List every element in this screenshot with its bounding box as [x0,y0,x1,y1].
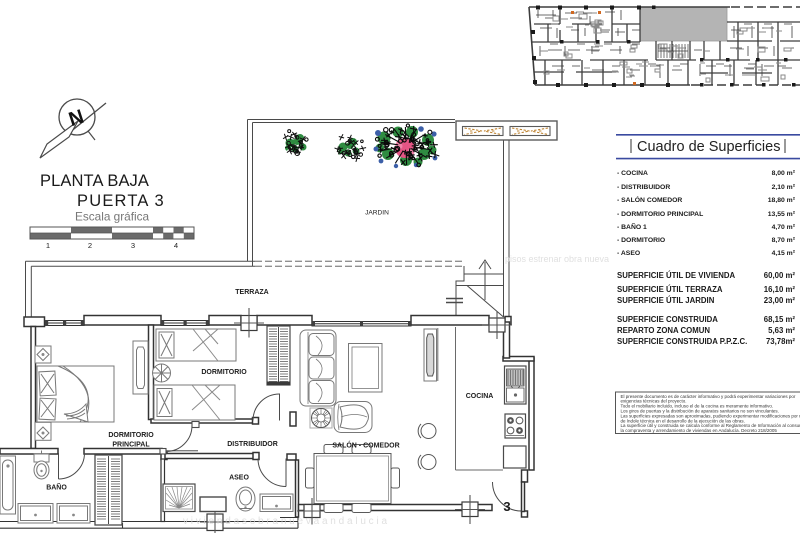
svg-text:18,80 m²: 18,80 m² [768,197,796,204]
svg-text:SALÓN - COMEDOR: SALÓN - COMEDOR [332,441,399,450]
svg-text:DORMITORIO: DORMITORIO [201,369,247,376]
svg-text:23,00 m²: 23,00 m² [764,296,796,305]
svg-text:PUERTA 3: PUERTA 3 [77,192,165,210]
svg-text:68,15 m²: 68,15 m² [764,315,796,324]
svg-text:2: 2 [88,241,92,250]
svg-text:4,15 m²: 4,15 m² [772,250,796,257]
svg-text:13,55 m²: 13,55 m² [768,211,796,218]
svg-text:- SALÓN COMEDOR: - SALÓN COMEDOR [617,195,682,204]
svg-text:16,10 m²: 16,10 m² [764,285,796,294]
svg-text:3: 3 [503,499,510,514]
svg-text:COCINA: COCINA [466,393,494,400]
svg-text:SUPERFICIE ÚTIL DE VIVIENDA: SUPERFICIE ÚTIL DE VIVIENDA [617,271,735,280]
svg-text:DISTRIBUIDOR: DISTRIBUIDOR [227,441,278,448]
svg-text:pisos estrenar obra nueva: pisos estrenar obra nueva [505,254,609,264]
svg-text:- COCINA: - COCINA [617,170,648,177]
svg-text:4,70 m²: 4,70 m² [772,224,796,231]
svg-text:60,00 m²: 60,00 m² [764,271,796,280]
svg-text:PRINCIPAL: PRINCIPAL [112,442,150,449]
svg-text:v i v i e n d a s o b r a: v i v i e n d a s o b r a n u e v a a n … [183,516,387,527]
svg-text:REPARTO ZONA COMUN: REPARTO ZONA COMUN [617,326,710,335]
svg-text:3: 3 [131,241,135,250]
svg-text:- DORMITORIO PRINCIPAL: - DORMITORIO PRINCIPAL [617,211,703,218]
svg-text:TERRAZA: TERRAZA [235,289,268,296]
svg-text:BAÑO: BAÑO [46,483,67,492]
svg-text:1: 1 [46,241,50,250]
svg-text:2,10 m²: 2,10 m² [772,184,796,191]
svg-text:4: 4 [174,241,178,250]
svg-text:SUPERFICIE ÚTIL TERRAZA: SUPERFICIE ÚTIL TERRAZA [617,285,723,294]
svg-text:- DORMITORIO: - DORMITORIO [617,237,665,244]
svg-text:JARDIN: JARDIN [365,210,389,217]
svg-text:SUPERFICIE CONSTRUIDA: SUPERFICIE CONSTRUIDA [617,315,718,324]
svg-text:Cuadro de Superficies: Cuadro de Superficies [637,139,780,155]
svg-text:Escala gráfica: Escala gráfica [75,210,150,224]
svg-text:73,78m²: 73,78m² [766,337,795,346]
svg-text:5,63 m²: 5,63 m² [768,326,795,335]
svg-text:DORMITORIO: DORMITORIO [108,432,154,439]
svg-text:- DISTRIBUIDOR: - DISTRIBUIDOR [617,184,670,191]
svg-text:- BAÑO 1: - BAÑO 1 [617,222,647,231]
svg-text:SUPERFICIE ÚTIL JARDIN: SUPERFICIE ÚTIL JARDIN [617,296,715,305]
svg-text:8,00 m²: 8,00 m² [772,170,796,177]
svg-text:SUPERFICIE CONSTRUIDA P.P.Z.C.: SUPERFICIE CONSTRUIDA P.P.Z.C. [617,337,747,346]
svg-text:- ASEO: - ASEO [617,250,640,257]
svg-text:PLANTA BAJA: PLANTA BAJA [40,172,149,190]
svg-text:ASEO: ASEO [229,475,249,482]
svg-text:8,70 m²: 8,70 m² [772,237,796,244]
svg-text:la compraventa y arrendamiento: la compraventa y arrendamiento de vivien… [621,428,778,433]
